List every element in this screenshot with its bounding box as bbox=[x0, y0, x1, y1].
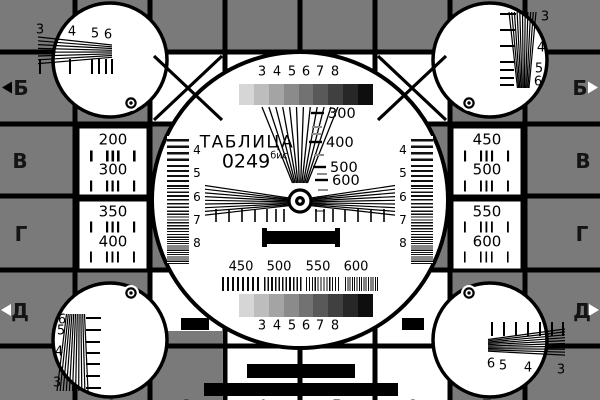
corner-br-3: 3 bbox=[557, 364, 565, 377]
box-value-350: 350 bbox=[99, 205, 128, 220]
card-number: 0249 bbox=[222, 153, 270, 172]
top-scale-6: 6 bbox=[302, 66, 310, 79]
corner-tr-4: 4 bbox=[537, 42, 545, 55]
burst-600 bbox=[345, 277, 378, 291]
test-card-0249: ТАБЛИЦА 0249 бис 300 400 500 600 3 4 5 6… bbox=[0, 0, 600, 400]
side-mark-left-4: 4 bbox=[193, 144, 201, 156]
row-label-left-g: Г bbox=[15, 224, 28, 244]
wedge-mark-300: 300 bbox=[328, 107, 356, 122]
box-value-300: 300 bbox=[99, 163, 128, 178]
grayscale-bar-top bbox=[239, 84, 373, 105]
side-mark-left-6: 6 bbox=[193, 191, 201, 203]
burst-500 bbox=[264, 277, 302, 291]
bottom-scale-5: 5 bbox=[288, 320, 296, 333]
row-label-right-d: Д bbox=[573, 301, 591, 321]
edge-digit-top-2: 2 bbox=[107, 0, 117, 2]
bottom-scale-7: 7 bbox=[316, 320, 324, 333]
side-wedge-left bbox=[167, 136, 189, 264]
bottom-scale-3: 3 bbox=[258, 320, 266, 333]
side-mark-right-5: 5 bbox=[399, 167, 407, 179]
wedge-mark-400: 400 bbox=[326, 136, 354, 151]
edge-digit-top-4: 4 bbox=[257, 0, 267, 2]
box-value-550: 550 bbox=[473, 205, 502, 220]
corner-tr-3: 3 bbox=[541, 11, 549, 24]
row-label-right-b: Б bbox=[572, 78, 587, 98]
top-scale-8: 8 bbox=[331, 66, 339, 79]
side-mark-right-7: 7 bbox=[399, 214, 407, 226]
box-value-200: 200 bbox=[99, 133, 128, 148]
black-square-left bbox=[181, 318, 209, 330]
side-mark-right-4: 4 bbox=[399, 144, 407, 156]
edge-digit-top-6: 6 bbox=[407, 0, 417, 2]
corner-tl-6: 6 bbox=[104, 29, 112, 42]
top-scale-4: 4 bbox=[273, 66, 281, 79]
card-title: ТАБЛИЦА bbox=[200, 135, 295, 152]
side-mark-right-6: 6 bbox=[399, 191, 407, 203]
bottom-scale-4: 4 bbox=[273, 320, 281, 333]
row-label-left-d: Д bbox=[11, 301, 29, 321]
bottom-scale-6: 6 bbox=[302, 320, 310, 333]
top-scale-5: 5 bbox=[288, 66, 296, 79]
wedge-mark-600: 600 bbox=[332, 174, 360, 189]
bottom-scale-8: 8 bbox=[331, 320, 339, 333]
edge-digit-top-7: 7 bbox=[482, 0, 492, 2]
side-mark-left-8: 8 bbox=[193, 237, 201, 249]
burst-mark-600: 600 bbox=[344, 261, 369, 274]
corner-bl-4: 4 bbox=[55, 346, 63, 359]
corner-bl-5: 5 bbox=[57, 325, 65, 338]
row-label-right-v: В bbox=[575, 151, 590, 171]
edge-digit-top-3: 3 bbox=[182, 0, 192, 2]
row-label-left-v: В bbox=[12, 151, 27, 171]
corner-br-4: 4 bbox=[524, 362, 532, 375]
corner-tl-4: 4 bbox=[68, 26, 76, 39]
card-graphics bbox=[0, 0, 600, 400]
grayscale-bar-bottom bbox=[239, 294, 373, 317]
box-value-600: 600 bbox=[473, 235, 502, 250]
edge-digit-top-5: 5 bbox=[332, 0, 342, 2]
streak-bar-short bbox=[247, 364, 355, 378]
burst-450 bbox=[222, 277, 260, 291]
burst-mark-550: 550 bbox=[306, 261, 331, 274]
box-value-450: 450 bbox=[473, 133, 502, 148]
row-label-right-g: Г bbox=[576, 224, 589, 244]
top-scale-7: 7 bbox=[316, 66, 324, 79]
row-label-left-b: Б bbox=[13, 78, 28, 98]
corner-tl-3: 3 bbox=[36, 24, 44, 37]
black-square-right bbox=[402, 318, 424, 330]
side-mark-left-7: 7 bbox=[193, 214, 201, 226]
box-value-400: 400 bbox=[99, 235, 128, 250]
side-mark-left-5: 5 bbox=[193, 167, 201, 179]
corner-br-6: 6 bbox=[487, 358, 495, 371]
top-scale-3: 3 bbox=[258, 66, 266, 79]
corner-bl-3: 3 bbox=[53, 377, 61, 390]
card-number-suffix: бис bbox=[270, 151, 287, 161]
burst-mark-450: 450 bbox=[229, 261, 254, 274]
side-wedge-right bbox=[411, 136, 433, 264]
corner-tl-5: 5 bbox=[91, 28, 99, 41]
corner-br-5: 5 bbox=[499, 360, 507, 373]
streak-bar-long bbox=[204, 383, 398, 396]
burst-550 bbox=[306, 277, 341, 291]
corner-tr-6: 6 bbox=[534, 76, 542, 89]
box-value-500: 500 bbox=[473, 163, 502, 178]
side-mark-right-8: 8 bbox=[399, 237, 407, 249]
burst-mark-500: 500 bbox=[267, 261, 292, 274]
